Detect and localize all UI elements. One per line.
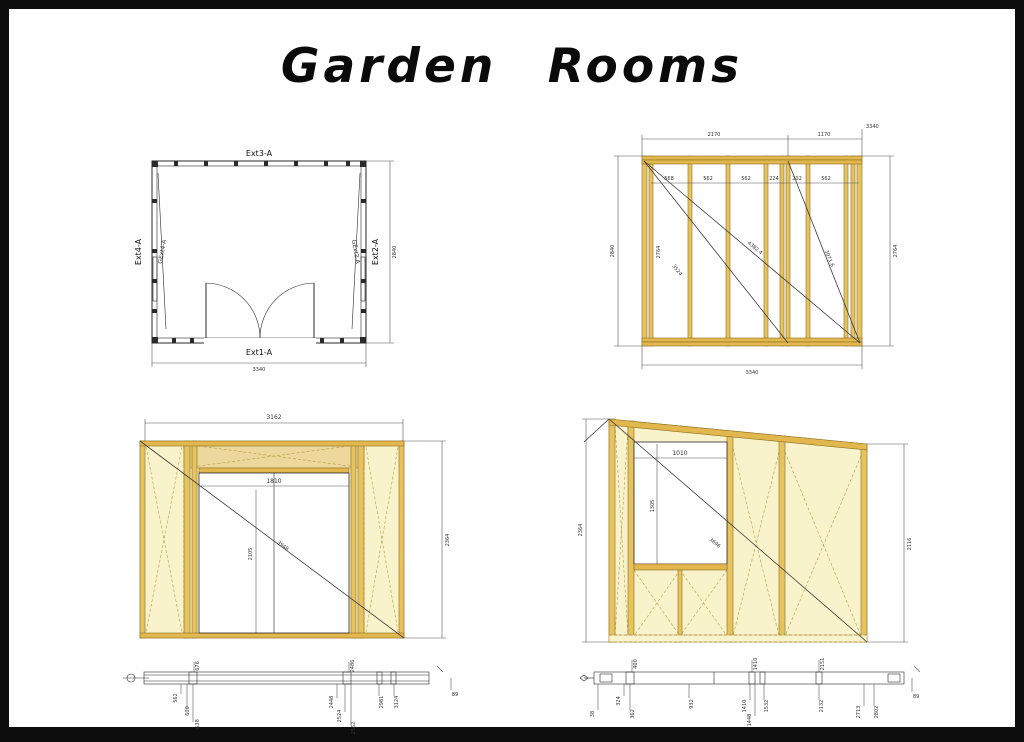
svg-text:2562: 2562 bbox=[351, 722, 357, 735]
left-height-dim: 2840 bbox=[610, 245, 616, 258]
floor-plan-drawing: 2840 Ext3-A Ext1-A Ext4-A Ext2-A GExt4-A bbox=[64, 129, 454, 389]
sheet-title: Garden Rooms bbox=[9, 39, 1015, 94]
plan-width-dim: 3340 bbox=[253, 367, 266, 373]
door-section-dims: 676 2486 562 600 638 2448 2524 2562 2981… bbox=[173, 660, 458, 735]
plan-depth-dim: 2840 bbox=[392, 246, 398, 259]
stud-height-dim: 2764 bbox=[656, 246, 662, 259]
svg-text:2151: 2151 bbox=[820, 658, 826, 671]
svg-text:2713: 2713 bbox=[856, 706, 862, 719]
side-right-height-dim: 2116 bbox=[907, 538, 913, 551]
svg-text:2981: 2981 bbox=[379, 696, 385, 709]
door-elevation-drawing: 1810 2105 3948 3162 2364 bbox=[124, 404, 464, 649]
svg-text:2132: 2132 bbox=[819, 700, 825, 713]
door-right-height-dim: 2364 bbox=[445, 534, 451, 547]
right-height-dim: 2764 bbox=[893, 245, 899, 258]
sheet-background: Garden Rooms 2840 Ext3-A bbox=[9, 9, 1015, 727]
svg-text:362: 362 bbox=[630, 709, 636, 719]
side-left-height-dim: 2364 bbox=[578, 524, 584, 537]
svg-text:1410: 1410 bbox=[742, 700, 748, 713]
svg-text:562: 562 bbox=[703, 176, 713, 182]
framing-elevation-drawing: 4382.4 3524 3071.6 2764 568 562 562 224 … bbox=[604, 119, 914, 384]
svg-text:400: 400 bbox=[633, 659, 639, 669]
svg-text:224: 224 bbox=[769, 176, 779, 182]
overall-dim: 3340 bbox=[866, 124, 879, 130]
bottom-dim: 3340 bbox=[746, 370, 759, 376]
svg-text:638: 638 bbox=[195, 719, 201, 729]
plan-label-gext4: GExt4-A bbox=[157, 238, 168, 264]
window-height-dim: 1305 bbox=[650, 500, 656, 513]
svg-text:324: 324 bbox=[616, 696, 622, 706]
svg-text:676: 676 bbox=[195, 661, 201, 671]
door-top-dim: 3162 bbox=[266, 414, 281, 421]
svg-text:2524: 2524 bbox=[337, 710, 343, 723]
opening-width-dim: 1810 bbox=[266, 478, 281, 485]
drawing-sheet: { "page": { "title": "Garden Rooms" }, "… bbox=[0, 0, 1024, 736]
svg-text:1448: 1448 bbox=[747, 714, 753, 727]
svg-text:600: 600 bbox=[185, 706, 191, 716]
svg-text:89: 89 bbox=[452, 692, 458, 698]
svg-text:562: 562 bbox=[821, 176, 831, 182]
door-plate-section: 676 2486 562 600 638 2448 2524 2562 2981… bbox=[119, 654, 469, 742]
svg-text:2486: 2486 bbox=[350, 660, 356, 673]
svg-text:89: 89 bbox=[913, 694, 919, 700]
top-dim-left: 2170 bbox=[708, 132, 721, 138]
plan-stud-ticks bbox=[152, 161, 366, 343]
top-dim-right: 1170 bbox=[818, 132, 831, 138]
plan-label-ext2: Ext2-A bbox=[371, 238, 380, 265]
svg-text:562: 562 bbox=[173, 693, 179, 703]
plan-label-ext4: Ext4-A bbox=[134, 238, 143, 265]
svg-text:1410: 1410 bbox=[753, 658, 759, 671]
side-elevation-drawing: 1010 1305 3696 2364 2116 bbox=[564, 394, 934, 654]
svg-text:1532: 1532 bbox=[764, 700, 770, 713]
window-width-dim: 1010 bbox=[672, 450, 687, 457]
svg-text:568: 568 bbox=[664, 176, 674, 182]
svg-text:562: 562 bbox=[741, 176, 751, 182]
side-section-dims: 400 1410 2151 38 324 362 932 1410 1448 1… bbox=[590, 658, 919, 727]
plan-label-ext1: Ext1-A bbox=[246, 348, 273, 357]
svg-text:2448: 2448 bbox=[329, 696, 335, 709]
svg-text:3124: 3124 bbox=[394, 696, 400, 709]
svg-text:932: 932 bbox=[689, 699, 695, 709]
svg-text:38: 38 bbox=[590, 711, 596, 717]
opening-height-dim: 2105 bbox=[248, 548, 254, 561]
side-plate-section: 400 1410 2151 38 324 362 932 1410 1448 1… bbox=[564, 654, 934, 742]
diag-left-dim: 3524 bbox=[671, 264, 684, 278]
svg-text:202: 202 bbox=[792, 176, 802, 182]
diag-right-dim: 3071.6 bbox=[823, 249, 835, 267]
plan-label-gext2: GExt2-A bbox=[350, 239, 361, 265]
svg-text:2802: 2802 bbox=[874, 706, 880, 719]
plan-label-ext3: Ext3-A bbox=[246, 149, 273, 158]
